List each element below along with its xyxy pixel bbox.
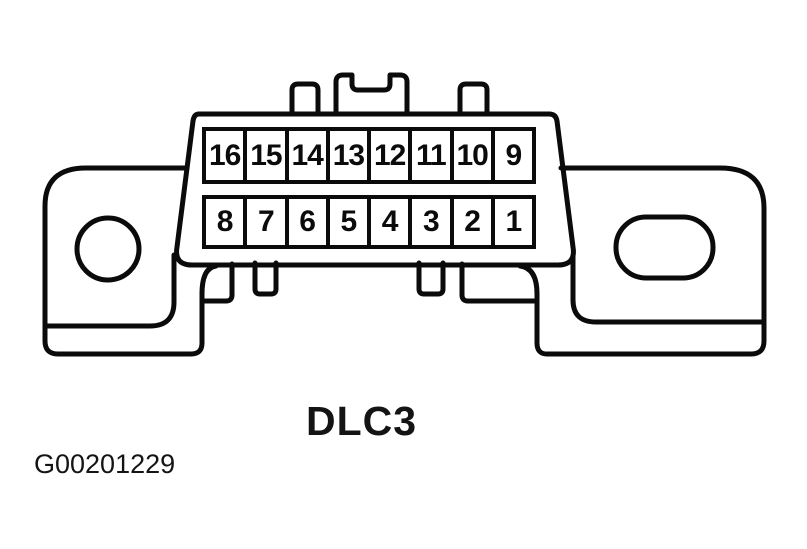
connector-label: DLC3 — [306, 401, 417, 442]
pin-row-bottom: 8 7 6 5 4 3 2 1 — [202, 195, 536, 249]
bottom-tab-right — [419, 263, 443, 294]
left-bracket-plate-edge — [45, 255, 174, 326]
pin-cell-9: 9 — [495, 131, 532, 180]
pin-cell-16: 16 — [206, 131, 247, 180]
pin-cell-4: 4 — [371, 199, 412, 245]
right-bracket-plate-edge — [573, 256, 764, 322]
pin-cell-11: 11 — [412, 131, 453, 180]
right-bracket-slot-icon — [616, 217, 713, 278]
pin-cell-14: 14 — [289, 131, 330, 180]
dlc3-connector-diagram: 16 15 14 13 12 11 10 9 8 7 6 5 4 3 2 1 D… — [0, 0, 807, 549]
bottom-tab-left — [255, 263, 276, 294]
pin-cell-10: 10 — [454, 131, 495, 180]
top-tab-right — [460, 84, 487, 112]
pin-cell-8: 8 — [206, 199, 247, 245]
pin-cell-15: 15 — [247, 131, 288, 180]
pin-cell-1: 1 — [495, 199, 532, 245]
left-bracket-hole-icon — [77, 218, 139, 280]
pin-cell-12: 12 — [371, 131, 412, 180]
top-tab-left — [292, 84, 318, 112]
pin-cell-13: 13 — [330, 131, 371, 180]
figure-id: G00201229 — [34, 449, 175, 479]
top-tab-center-notched — [336, 75, 407, 112]
pin-cell-6: 6 — [289, 199, 330, 245]
pin-row-top: 16 15 14 13 12 11 10 9 — [202, 127, 536, 184]
pin-cell-3: 3 — [412, 199, 453, 245]
pin-cell-5: 5 — [330, 199, 371, 245]
pin-cell-2: 2 — [454, 199, 495, 245]
pin-cell-7: 7 — [247, 199, 288, 245]
right-bracket-outline — [520, 168, 764, 354]
